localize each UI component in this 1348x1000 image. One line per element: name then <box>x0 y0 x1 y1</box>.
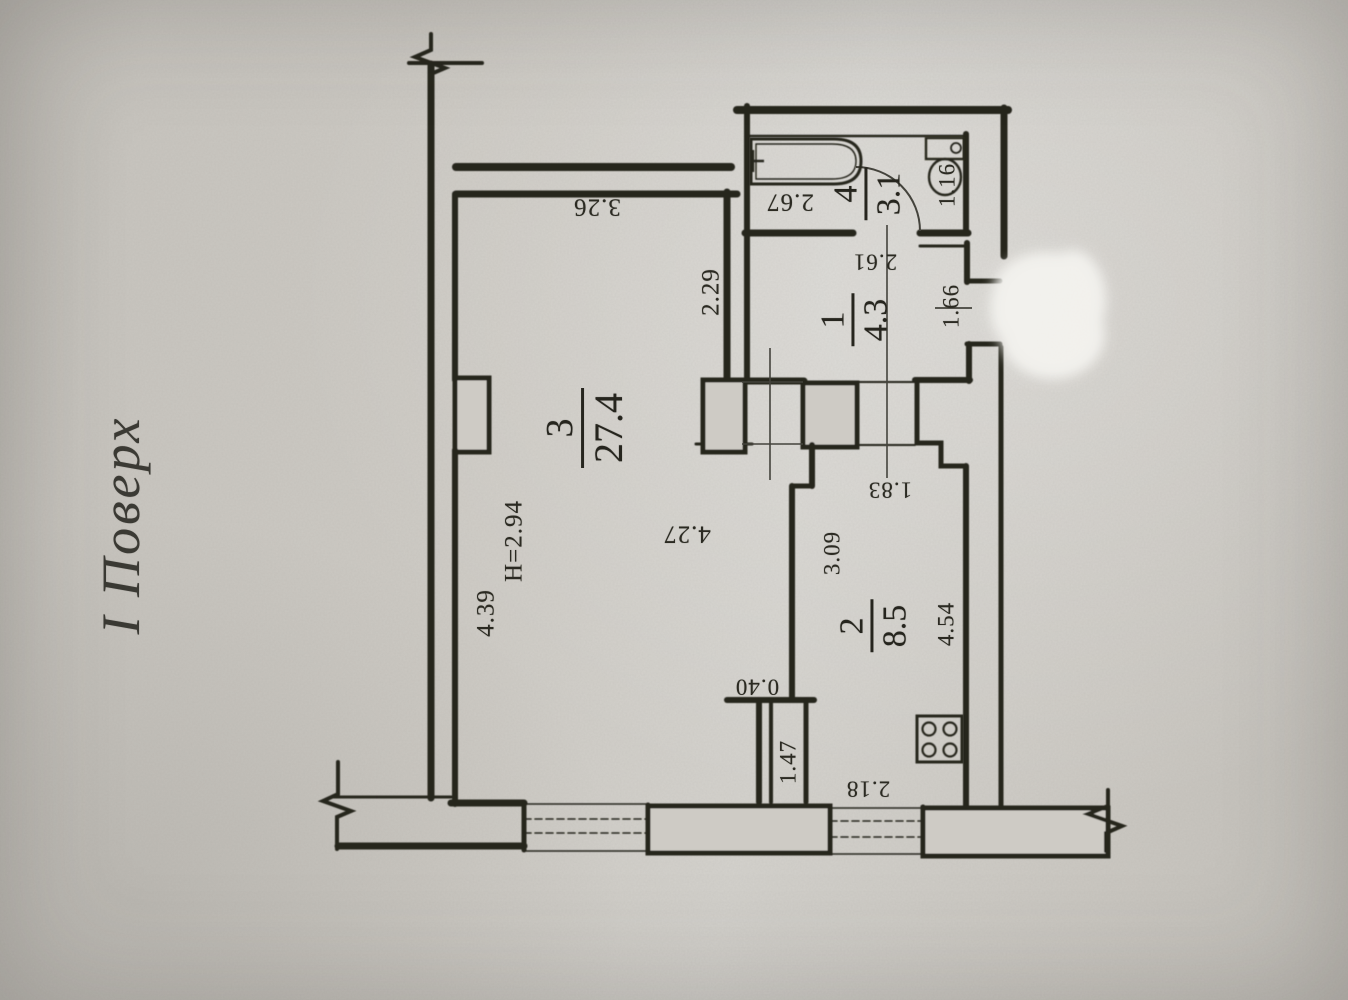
bottom-wall-pier <box>648 806 830 853</box>
dim-bath-width: 1.16 <box>936 163 959 207</box>
room-label-living: 3 27.4 <box>541 388 631 468</box>
floor-plan-drawing <box>0 0 1348 1000</box>
room-area: 3.1 <box>864 168 907 221</box>
room-number: 4 <box>828 184 864 205</box>
dim-room3-bottom-width: 4.27 <box>663 522 711 547</box>
pier <box>703 380 745 452</box>
dim-room3-left-length: 4.39 <box>474 589 499 637</box>
room-area: 27.4 <box>581 388 631 468</box>
dim-room3-top-width: 3.26 <box>573 195 621 220</box>
room-number: 1 <box>815 310 851 331</box>
bottom-wall-right-section <box>923 808 1108 856</box>
room-label-hall: 1 4.3 <box>815 294 894 347</box>
duct-block-left <box>803 383 857 447</box>
room-label-bath: 4 3.1 <box>828 168 907 221</box>
dim-kitchen-recess: 1.47 <box>777 740 800 784</box>
dim-ceiling-height: H=2.94 <box>502 500 527 582</box>
dim-kitchen-right-length: 4.54 <box>935 602 958 646</box>
dim-room3-notch: 0.40 <box>735 676 779 699</box>
dim-hall-length: 2.61 <box>853 251 897 274</box>
room-label-kitchen: 2 8.5 <box>834 600 913 653</box>
page-title: І Поверх <box>90 416 152 635</box>
dim-kitchen-bottom-width: 2.18 <box>846 778 890 801</box>
room-number: 3 <box>541 417 581 440</box>
scanned-floor-plan-page: І Поверх 3 27.4 1 4.3 2 8.5 4 3.1 3.26 2… <box>0 0 1348 1000</box>
room-area: 8.5 <box>870 600 913 653</box>
dim-bath-length: 2.67 <box>766 190 814 215</box>
room-number: 2 <box>834 616 870 637</box>
dim-room3-upper-right: 2.29 <box>699 268 724 316</box>
dim-hall-width: 1.66 <box>940 284 963 328</box>
room-area: 4.3 <box>851 294 894 347</box>
dim-kitchen-top-width: 1.83 <box>868 479 912 502</box>
pilaster <box>455 378 489 452</box>
dim-kitchen-left-length: 3.09 <box>821 531 844 575</box>
